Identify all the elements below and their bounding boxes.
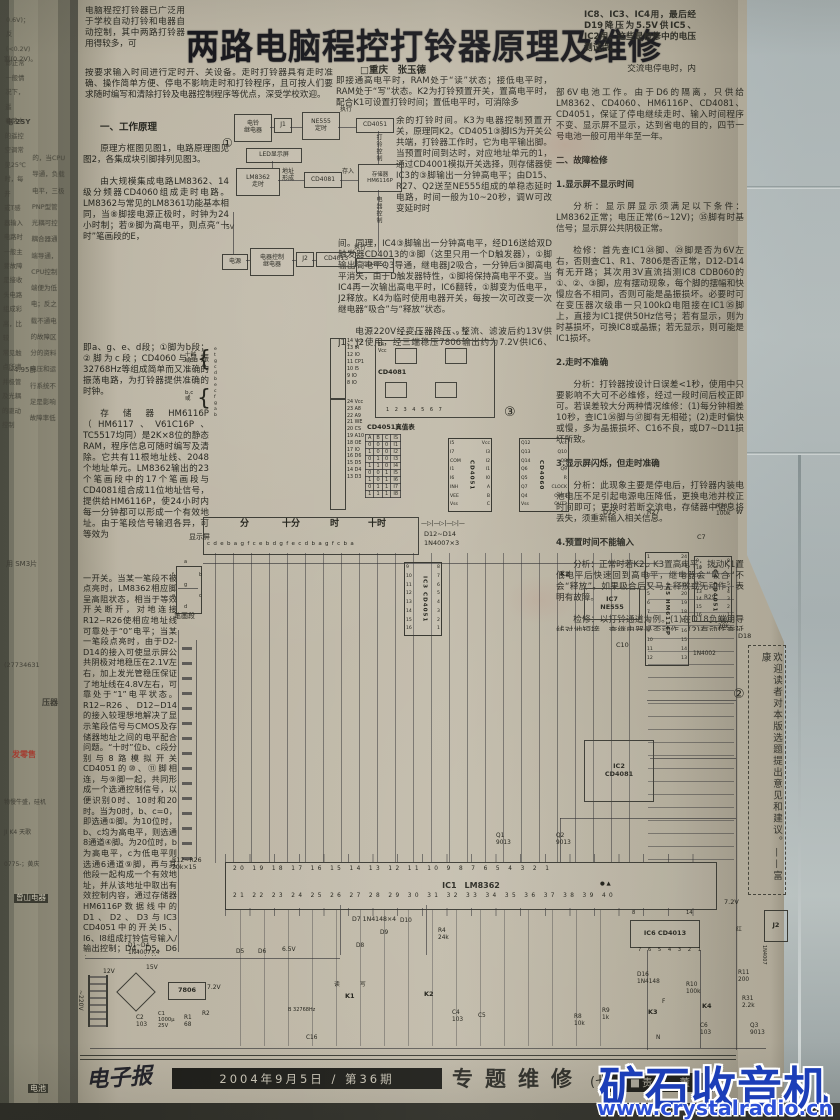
schematic-label: 分 [240, 519, 249, 529]
truth-cell: 0 [382, 456, 391, 463]
schematic-label: N [656, 1035, 660, 1042]
mid-column-wide: 间。同理，IC4③脚输出一分钟高电平，经D16送给双D触发器CD4013的③脚（… [338, 228, 552, 348]
right-column-top: IC8、IC3、IC4用，最后经D19降压为5.5V供IC5、IC2用。这些是检… [584, 10, 696, 64]
truth-col-header: B [374, 435, 382, 442]
schematic-label: R2 [202, 1011, 210, 1018]
cd4051-box-bottom: CD4051 [356, 258, 394, 273]
schematic-label: g [184, 583, 187, 589]
display-bar [203, 517, 419, 555]
store-label: 存入 [342, 168, 354, 175]
ic6-cd4013: IC6 CD4013 [630, 920, 700, 948]
schematic-label: K3 [648, 1009, 658, 1016]
led-display-box: LED显示屏 [246, 148, 302, 163]
schematic-label: 用 SM3片 [6, 560, 37, 568]
truth-cell: I4 [391, 463, 401, 470]
schematic-label: —▷|—▷|—▷|— [421, 521, 465, 528]
schematic-label: R1 68 [184, 1015, 192, 1028]
schematic-label: d [184, 605, 187, 611]
tile-seam [738, 186, 840, 189]
schematic-label: 12V [103, 969, 115, 976]
lm8362-box: LM8362 走时 [236, 168, 280, 196]
newspaper-photo: 0.6V)；反 (<0.2V) 即正常 一般情 况下，遥 电路中 的遥控 空调常… [0, 0, 840, 1120]
schematic-label: D7 1N4148×4 [352, 916, 396, 923]
article-lead-fragment: 电脑程控打铃器已广泛用于学校自动打铃和电器自动控制，其中两路打铃器用得较多，可 [85, 6, 185, 64]
ctrl-relay-box: 电器控制 继电器 [250, 248, 294, 276]
schematic-label: W [736, 509, 742, 516]
schematic-label: a [184, 560, 187, 566]
schematic-label: C2 103 [136, 1015, 147, 1028]
truth-cell: 1 [382, 484, 391, 491]
truth-cell: 1 [374, 463, 382, 470]
fault-heading-2: 2.走时不准确 [556, 358, 744, 369]
schematic-label: 割(0.2V)。 [4, 56, 37, 63]
schematic-label: 电 2SY [6, 118, 30, 126]
schematic-label: 笔画段 [174, 612, 195, 620]
schematic-label: 十时 或 [185, 352, 196, 365]
reader-notice-box: 欢迎读者对本版选题提出意见和建议。——富康 [748, 645, 786, 895]
date-issue-box: 2004年9月5日 / 第36期 [172, 1068, 442, 1089]
schematic-label: K1 [345, 993, 355, 1000]
schematic-label: 读 [334, 982, 340, 989]
section-name: 专题维修 [452, 1063, 584, 1093]
schematic-label: 0775-；黄庆 [4, 862, 39, 869]
truth-cell: I2 [391, 449, 401, 456]
truth-cell: I8 [391, 491, 401, 498]
schematic-label: 1 2 3 4 5 6 7 [386, 408, 444, 414]
tile-seam [738, 452, 840, 455]
schematic-label: CD4051真值表 [367, 424, 415, 431]
truth-cell: I1 [391, 442, 401, 449]
fault-heading-4: 4.预置时间不能输入 [556, 538, 744, 549]
schematic-label: D8 [356, 943, 364, 950]
truth-col-header: IS [391, 435, 401, 442]
regulator-7806: 7806 [168, 982, 206, 1000]
schematic-label: C7 [697, 534, 706, 541]
schematic-label: 十时 [368, 519, 386, 529]
schematic-label: R10 100k [686, 982, 700, 995]
schematic-label: D5 [236, 949, 244, 956]
schematic-label: K2 [560, 571, 570, 578]
section-heading-2: 二、故障检修 [556, 156, 744, 167]
partial-dip-top [330, 338, 346, 400]
resistor-column [182, 640, 192, 860]
schematic-label: 14 Vcc [378, 343, 387, 354]
truth-cell: 0 [366, 470, 374, 477]
truth-col-header: A [366, 435, 374, 442]
schematic-label: 曾山电器 [14, 894, 48, 903]
truth-cell: 1 [366, 463, 374, 470]
truth-cell: 0 [374, 449, 382, 456]
partial-dip-bottom [330, 398, 346, 510]
truth-cell: I3 [391, 456, 401, 463]
memory-box: 存储器 HM6116P [358, 164, 402, 192]
truth-cell: 1 [366, 477, 374, 484]
schematic-label: D9 [380, 930, 388, 937]
schematic-label: D16 1N4148 [637, 972, 660, 985]
schematic-label: ≈4.95卧 [8, 366, 36, 374]
schematic-label: 十分 [282, 519, 300, 529]
truth-cell: I5 [391, 470, 401, 477]
schematic-label: R4 24k [438, 928, 449, 941]
schematic-label: ③ [504, 406, 516, 421]
cd4051-truth-table: ABCIS000I1100I2010I3110I4001I5101I6011I7… [365, 434, 401, 498]
transformer [88, 975, 108, 1027]
ic2-cd4081: IC2 CD4081 [584, 740, 654, 802]
tile-seam [798, 455, 801, 1103]
schematic-label: 物慢牛盛，硅机 [4, 800, 46, 807]
ic7-ne555: IC7 NE555 [584, 588, 640, 620]
truth-cell: 0 [374, 477, 382, 484]
schematic-label: 电池 [28, 1084, 48, 1093]
paragraph: 分析：打铃器按设计日误差<1秒，使用中只要影响不大可不必维修，经过一段时间后校正… [556, 380, 744, 446]
truth-cell: 0 [374, 442, 382, 449]
figure1-marker: ① [222, 136, 233, 150]
ic-name: IC3 CD4051 [421, 576, 427, 622]
schematic-label: Q3 9013 [750, 1023, 765, 1036]
schematic-label: K2 [424, 991, 434, 998]
ic-dip-ic3-cd4051: 910111213141516IC3 CD405187654321 [404, 562, 442, 636]
schematic-label: D15 [603, 509, 616, 516]
schematic-label: 时 [330, 519, 339, 529]
schematic-label: Q2 9013 [556, 833, 571, 846]
spine-text-column: 的，当CPU 导通，负载 电平，三极 PNP型管 光耦可控 耦合器通 端导通， … [30, 150, 69, 427]
schematic-label: C16 [306, 1035, 317, 1042]
schematic-label: C6 103 [700, 1023, 711, 1036]
truth-cell: I6 [391, 477, 401, 484]
j1-box: J1 [274, 118, 292, 133]
fault-heading-3: 3.显示屏闪烁，但走时准确 [556, 459, 744, 470]
paragraph: 间。同理，IC4③脚输出一分钟高电平，经D16送给双D触发器CD4013的③脚（… [338, 239, 552, 316]
paragraph: 由大规模集成电路LM8362、14级分频器CD4060组成走时电路。LM8362… [83, 177, 229, 243]
schematic-label: 显示屏 [189, 533, 210, 541]
right-column-top2: 交流电停电时，内 [558, 64, 696, 76]
truth-col-header: C [382, 435, 391, 442]
fault-heading-1: 1.显示屏不显示时间 [556, 180, 744, 191]
schematic-label: C1 1000µ 25V [158, 1012, 175, 1030]
ic-dip-cd4051: I5I7COMI1I6INHVEEVssCD4051VccI3I2I1I0ABC [448, 438, 492, 512]
schematic-label: b,c 或 [185, 390, 193, 403]
schematic-label: 7.2V [724, 899, 739, 906]
schematic-label: 红 [736, 927, 742, 934]
schematic-label: e [172, 594, 175, 600]
schematic-label: 7.2V [207, 985, 221, 992]
truth-cell: 0 [366, 484, 374, 491]
truth-cell: 0 [366, 456, 374, 463]
schematic-label: { [197, 386, 211, 411]
mid-column-top: 即接通高电平时，RAM处于“读”状态；接低电平时，RAM处于“写”状态。K2为打… [336, 76, 552, 116]
schematic-label: D10 [400, 918, 412, 925]
schematic-label: c d e b a g f c e b d g f e c d b a g f … [207, 541, 355, 547]
article-intro: 按要求输入时间进行定时开、关设备。走时打铃器具有走时准确、操作简单方便、停电不影… [85, 68, 333, 118]
schematic-label: 7 6 5 4 3 2 1 [638, 948, 704, 954]
cd4051-box-top: CD4051 [356, 118, 394, 133]
schematic-label: C4 103 [452, 1010, 463, 1023]
schematic-label: 1N4002 [693, 651, 716, 658]
left-column-a: 原理方框图见图1，电路原理图见图2，各集成块引脚排列见图3。 由大规模集成电路L… [83, 133, 229, 330]
ic-name: IC5 HM6116P [664, 583, 670, 636]
schematic-label: c [199, 594, 202, 600]
paragraph: 部6V电池工作。由于D6的隔离，只供给LM8362、CD4060、HM6116P… [556, 88, 744, 143]
schematic-label: 8 [632, 911, 635, 917]
schematic-label: F [662, 999, 665, 1006]
truth-cell: 0 [382, 463, 391, 470]
ic-name: CD4051 [468, 460, 474, 490]
schematic-label: R8 10k [574, 1014, 585, 1027]
schematic-label: 压器 [42, 698, 58, 707]
section-heading-1: 一、工作原理 [100, 119, 157, 133]
ic-dip-ic5-hm6116p: 123456789101112IC5 HM6116P24232221201918… [645, 552, 689, 666]
ne555-box: NE555 定时 [302, 112, 340, 140]
bell-relay-box: 电铃 继电器 [234, 114, 272, 142]
ic-dip-ic4-cd4051: 910111213141516IC4 CD405187654321 [694, 556, 732, 622]
paragraph: 分析：此现象主要是停电后，打铃器内装电池电压不足引起电源电压降低，更换电池并校正… [556, 481, 744, 525]
ic-name: IC4 CD4051 [711, 566, 717, 612]
truth-cell: 1 [374, 484, 382, 491]
schematic-label: 20 19 18 17 16 15 14 13 12 11 10 9 8 7 6… [233, 866, 552, 873]
schematic-label: ② [733, 688, 745, 703]
bottom-wiring [240, 910, 620, 1046]
j2-relay: J2 [764, 910, 788, 942]
truth-cell: 1 [366, 449, 374, 456]
schematic-label: D18 [738, 633, 751, 640]
schematic-label: (27734631 [4, 662, 40, 669]
schematic-label: b [199, 573, 202, 579]
schematic-label: 21 22 23 24 25 26 27 28 29 30 31 32 33 3… [233, 893, 616, 900]
schematic-label: 6.5V [282, 947, 296, 954]
left-column-c: 一开关。当某一笔段不被点亮时，LM8362相应脚呈高阻状态，相当于等效开关断开，… [83, 562, 177, 956]
schematic-label: R28 100k [716, 504, 730, 517]
truth-cell: 1 [382, 470, 391, 477]
schematic-label: D12~D14 [424, 531, 456, 538]
truth-cell: 1 [374, 491, 382, 498]
schematic-label: Q1 9013 [496, 833, 511, 846]
truth-cell: 1 [382, 477, 391, 484]
ic-dip-cd4060: Q12Q13Q14Q6Q5Q7Q4VssCD4060VccQ10Q8Q9RCLO… [519, 438, 569, 512]
cd4081-box: CD4081 [304, 172, 342, 188]
schematic-label: 13 12 11 10 9 8 [400, 332, 470, 338]
schematic-label: R9 1k [602, 1008, 610, 1021]
schematic-label: R27 [647, 509, 660, 516]
schematic-label: 写 [360, 982, 366, 989]
schematic-label: 14 Vcc 13 IR 12 IO 11 CP1 10 I5 9 IO 8 I… [347, 339, 364, 388]
ic-name: CD4060 [538, 460, 544, 490]
schematic-label: C5 [478, 1013, 486, 1020]
truth-cell: 0 [382, 449, 391, 456]
schematic-label: 14 [686, 911, 693, 917]
truth-cell: 1 [382, 491, 391, 498]
paragraph: 检修：首先查IC1㉘脚、㉙脚是否为6V左右，否则查C1、R1、7806是否正常，… [556, 246, 744, 345]
schematic-label: CD4081 [378, 369, 406, 376]
schematic-label: f [172, 573, 174, 579]
schematic-label: ~220V [76, 990, 83, 1011]
schematic-label: D1~D4 1N4007×4 [128, 943, 159, 956]
schematic-label: 1N4007 [760, 945, 766, 965]
truth-cell: 0 [374, 470, 382, 477]
schematic-label: e t g c d b e c f g a b [214, 347, 217, 419]
paragraph: 分析：显示屏显示须满足以下条件：LM8362正常；电压正常(6~12V)；㉟脚有… [556, 202, 744, 235]
schematic-label: JI K4 天歌 [4, 830, 31, 837]
schematic-label: D6 [258, 949, 266, 956]
schematic-label: 发零售 [12, 750, 36, 759]
schematic-label: C10 [616, 642, 629, 649]
schematic-label: R12~R26 20k×15 [172, 857, 202, 871]
schematic-label: ● ▲ [600, 881, 611, 887]
exec-label-2: 执行 [354, 244, 366, 251]
truth-cell: 0 [366, 442, 374, 449]
schematic-label: 15V [146, 965, 158, 972]
paragraph: 存储器HM6116P（HM6117、V61C16P、TC5517均同）是2K×8… [83, 409, 209, 541]
mid-column-narrow: 余的打铃时间。K3为电器控制预置开关，原理同K2。CD4051③脚IS为开关公共… [396, 116, 552, 228]
schematic-label: 24 Vcc 23 A8 22 A9 21 WE 20 CS 19 A10 18… [347, 400, 364, 482]
exec-label: 执行 [340, 106, 352, 113]
schematic-label: { [197, 347, 211, 372]
truth-cell: 0 [382, 442, 391, 449]
schematic-label: R31 2.2k [742, 996, 755, 1009]
truth-cell: 1 [374, 456, 382, 463]
schematic-label: K4 [702, 1003, 712, 1010]
article-byline: □重庆 张玉德 [360, 62, 426, 76]
paper-logo: 电子报 [85, 1058, 153, 1095]
paragraph: 一开关。当某一笔段不被点亮时，LM8362相应脚呈高阻状态，相当于等效开关断开，… [83, 573, 177, 956]
schematic-label: B 32768Hz [288, 1008, 315, 1014]
truth-cell: 1 [366, 491, 374, 498]
right-column: 部6V电池工作。由于D6的隔离，只供给LM8362、CD4060、HM6116P… [556, 77, 744, 631]
left-column-b: 即a、g、e、d段；①脚为b段；②脚为c段；CD4060与晶振32768Hz等组… [83, 332, 209, 560]
power-box: 电源 [222, 254, 248, 270]
truth-cell: I7 [391, 484, 401, 491]
cd4013-box: CD4013 [316, 252, 356, 267]
paragraph: 原理方框图见图1，电路原理图见图2，各集成块引脚排列见图3。 [83, 144, 229, 166]
schematic-label: R11 200 [738, 970, 749, 983]
schematic-label: 1N4007×3 [424, 540, 459, 547]
watermark-url: www.crystalradio.cn [597, 1096, 833, 1120]
